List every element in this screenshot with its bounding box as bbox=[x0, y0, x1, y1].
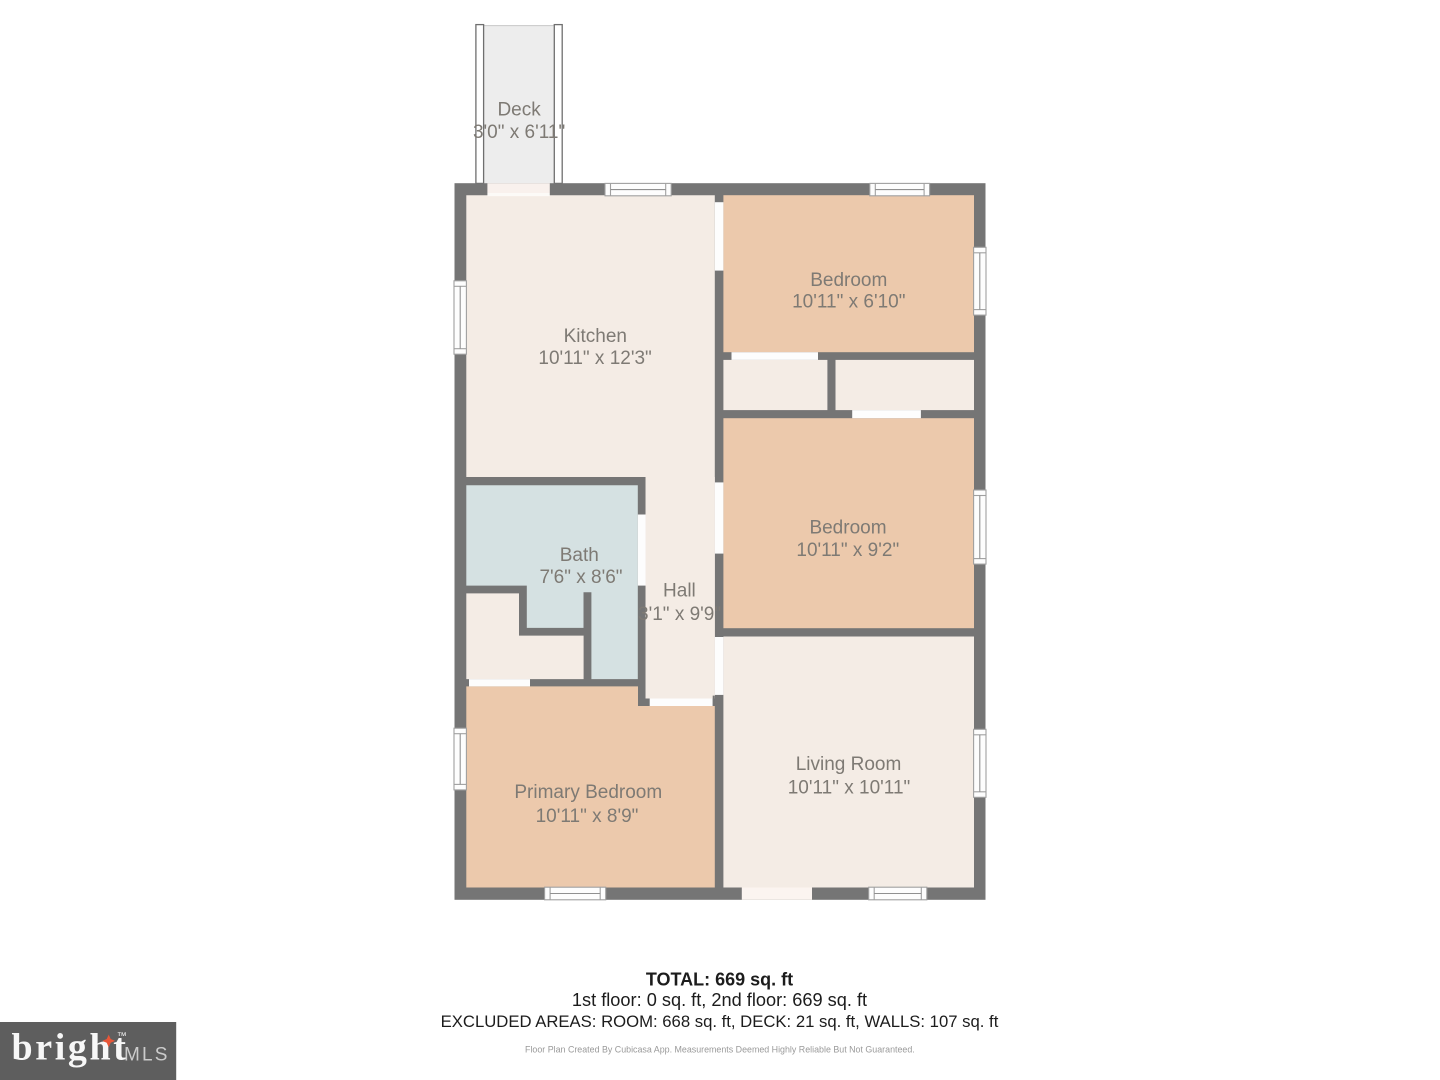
svg-text:TOTAL: 669 sq. ft: TOTAL: 669 sq. ft bbox=[646, 970, 793, 990]
svg-text:EXCLUDED AREAS: ROOM: 668 sq.: EXCLUDED AREAS: ROOM: 668 sq. ft, DECK: … bbox=[441, 1012, 999, 1031]
svg-text:bright: bright bbox=[12, 1027, 129, 1069]
svg-text:Bedroom: Bedroom bbox=[810, 270, 887, 291]
svg-text:™: ™ bbox=[117, 1031, 127, 1042]
svg-text:Primary Bedroom: Primary Bedroom bbox=[514, 782, 662, 803]
svg-text:1st floor: 0 sq. ft, 2nd floor: 1st floor: 0 sq. ft, 2nd floor: 669 sq. … bbox=[572, 990, 867, 1010]
svg-text:Hall: Hall bbox=[663, 580, 696, 601]
svg-text:Kitchen: Kitchen bbox=[564, 326, 627, 347]
svg-text:Bath: Bath bbox=[560, 545, 599, 566]
svg-text:10'11" x 8'9": 10'11" x 8'9" bbox=[536, 806, 639, 827]
svg-text:10'11" x 9'2": 10'11" x 9'2" bbox=[796, 540, 899, 561]
svg-text:10'11" x 10'11": 10'11" x 10'11" bbox=[788, 778, 911, 799]
svg-text:3'0" x 6'11": 3'0" x 6'11" bbox=[473, 122, 565, 143]
svg-text:7'6" x 8'6": 7'6" x 8'6" bbox=[539, 567, 622, 588]
svg-text:MLS: MLS bbox=[124, 1045, 170, 1066]
svg-text:Floor Plan Created By Cubicasa: Floor Plan Created By Cubicasa App. Meas… bbox=[525, 1045, 915, 1055]
svg-text:3'1" x 9'9": 3'1" x 9'9" bbox=[638, 604, 721, 625]
svg-text:Deck: Deck bbox=[497, 100, 541, 121]
svg-text:10'11" x 6'10": 10'11" x 6'10" bbox=[792, 292, 905, 313]
svg-text:Bedroom: Bedroom bbox=[809, 517, 886, 538]
svg-text:10'11" x 12'3": 10'11" x 12'3" bbox=[538, 348, 651, 369]
svg-text:Living Room: Living Room bbox=[796, 754, 902, 775]
